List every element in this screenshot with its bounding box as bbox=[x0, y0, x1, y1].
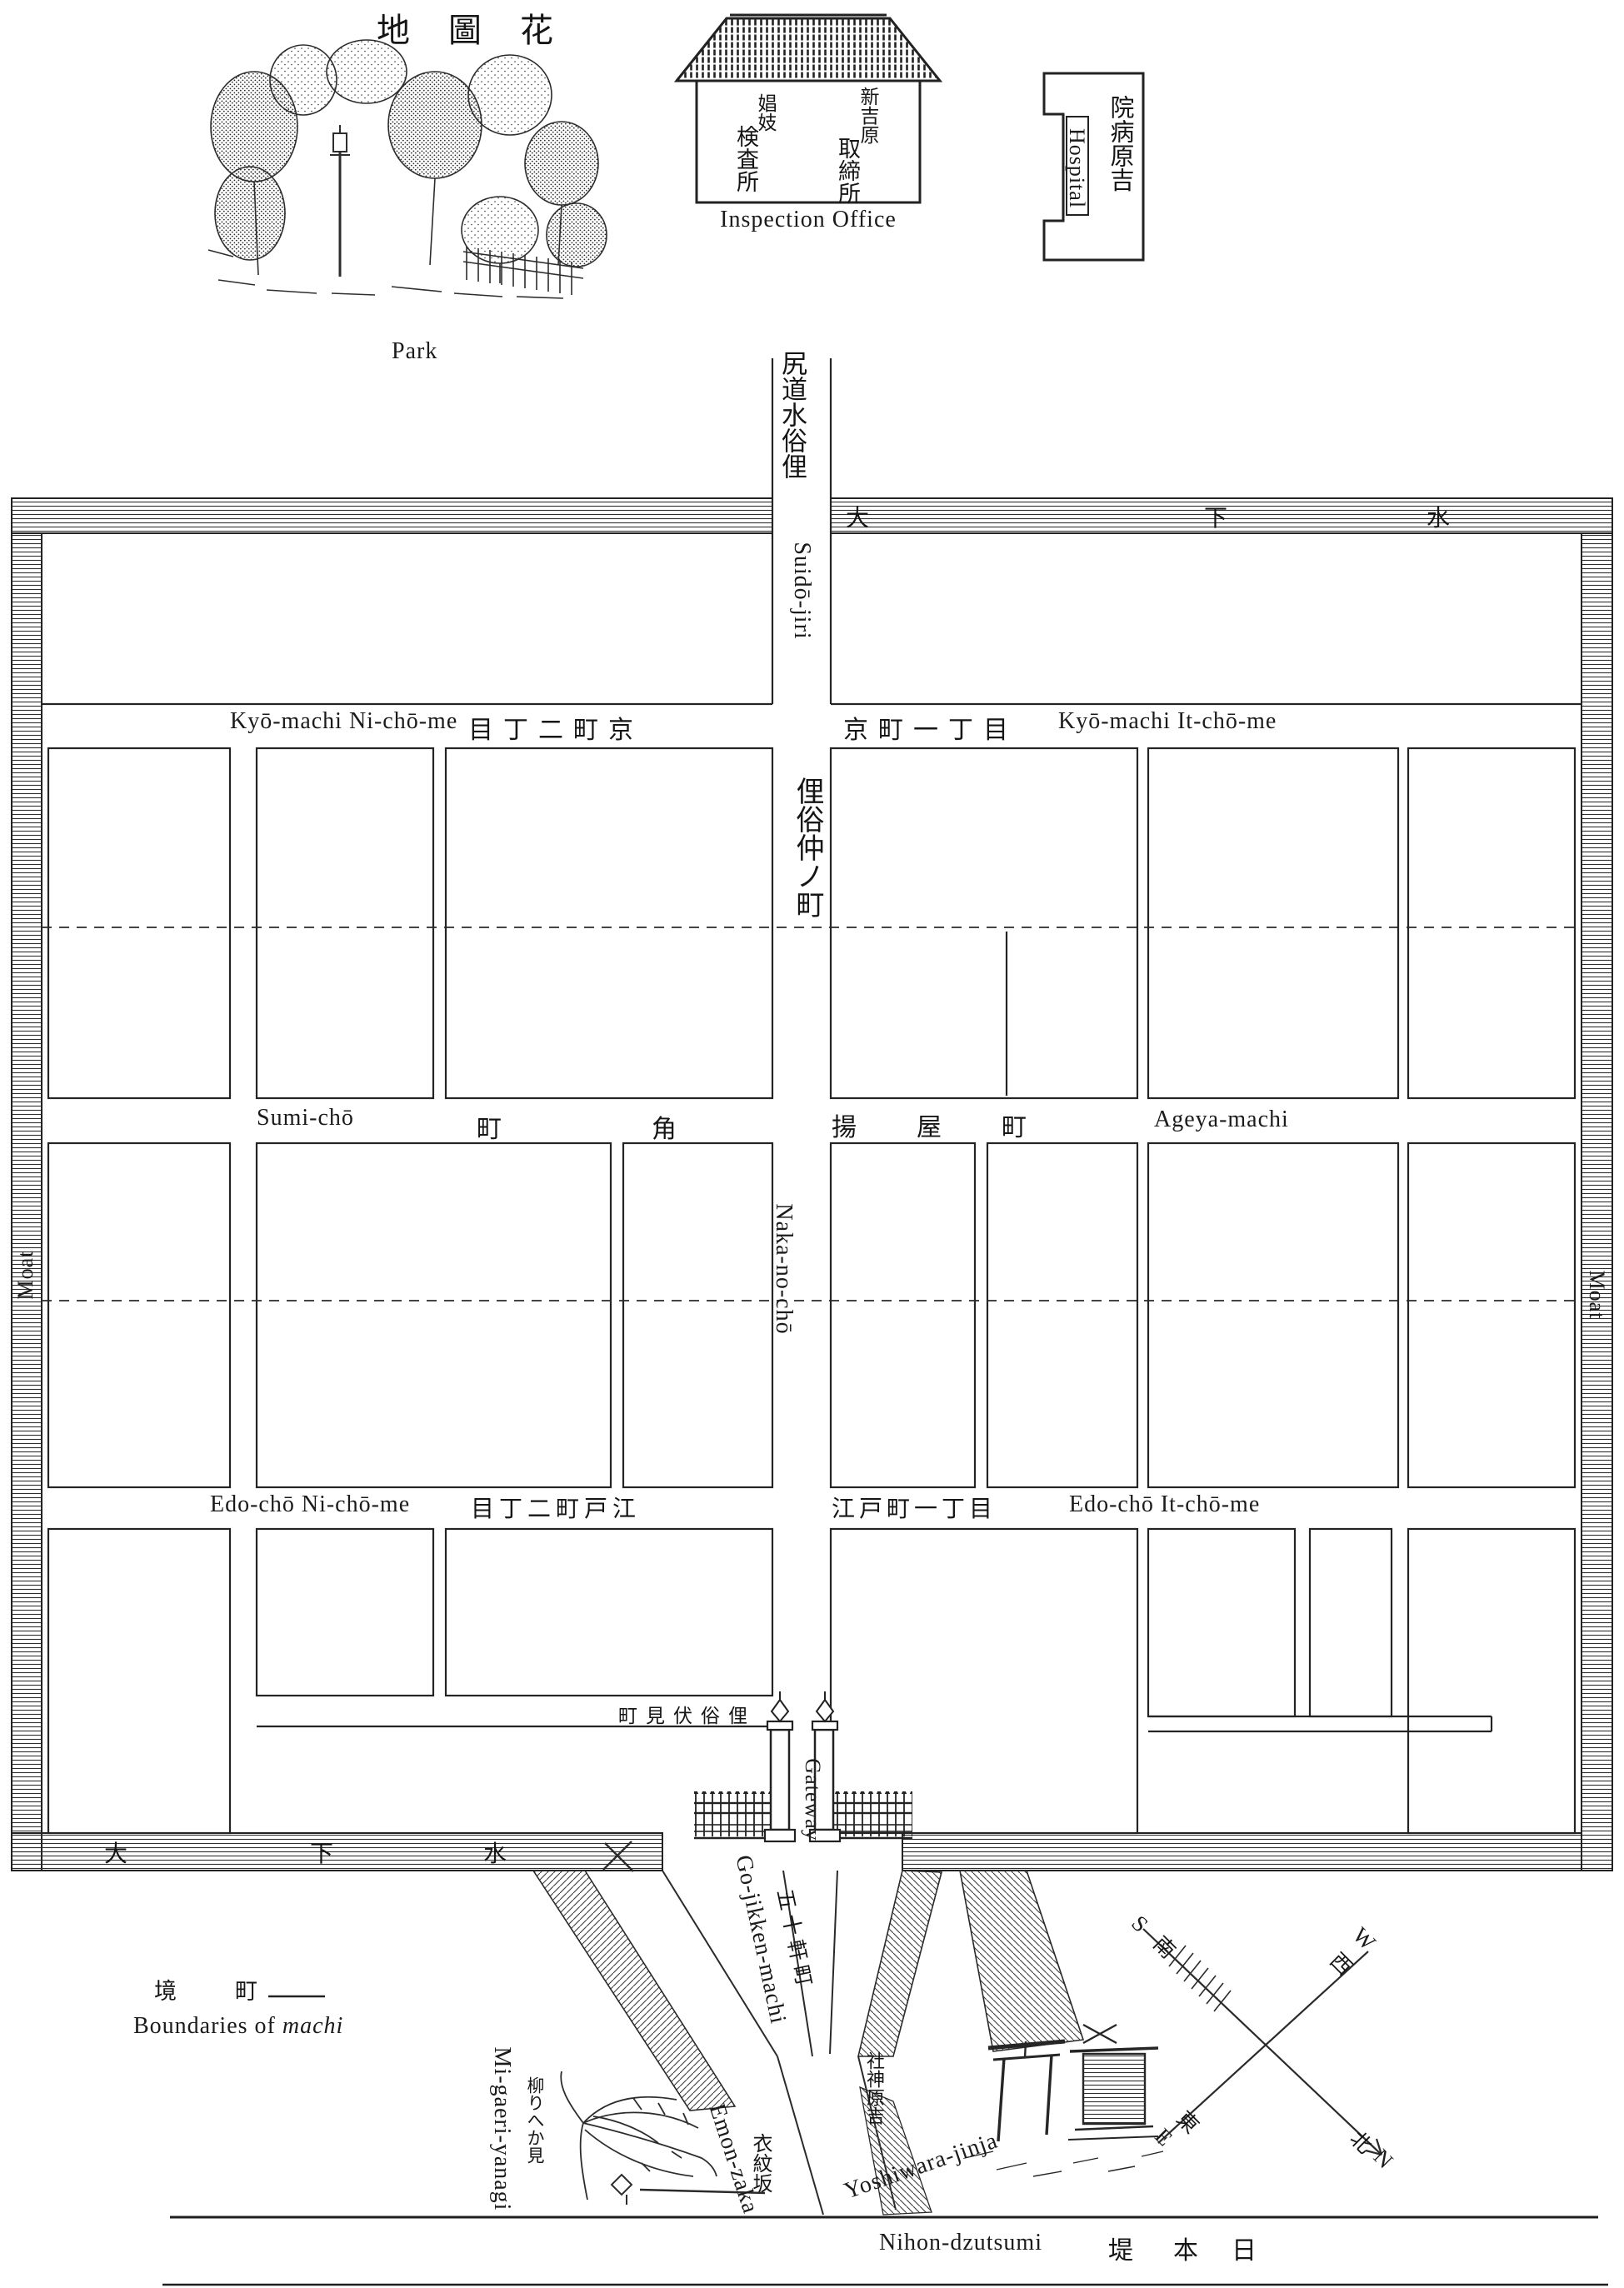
moat-bottom-char-3: 水 bbox=[483, 1836, 507, 1869]
sumi-cho-kanji-1: 町 bbox=[477, 1108, 502, 1145]
moat-top-char-1: 大 bbox=[846, 500, 869, 533]
moat-label-right: Moat bbox=[1584, 1263, 1609, 1326]
nihon-dzutsumi-kanji-3: 日 bbox=[1232, 2230, 1257, 2266]
road-slope-right bbox=[858, 1871, 942, 2056]
road-slope-left bbox=[533, 1871, 735, 2111]
shrine-slope bbox=[960, 1871, 1083, 2051]
naka-no-cho-label: Naka-no-chō bbox=[770, 1198, 797, 1340]
inspection-office-label: Inspection Office bbox=[700, 207, 917, 233]
migaeri-yanagi-label: Mi-gaeri-yanagi bbox=[488, 2033, 515, 2225]
edo-cho-1-label: Edo-chō It-chō-me bbox=[1069, 1491, 1260, 1518]
park-lamp bbox=[330, 125, 350, 277]
suido-jiri-label: Suidō-jiri bbox=[788, 528, 815, 653]
nihon-dzutsumi-kanji-1: 堤 bbox=[1108, 2230, 1133, 2266]
moat-top-char-3: 水 bbox=[1427, 500, 1450, 533]
legend-text: Boundaries of machi bbox=[133, 2013, 343, 2040]
moat-bottom-char-1: 大 bbox=[104, 1836, 127, 1869]
hospital-kanji: 院病原吉 bbox=[1100, 95, 1139, 192]
willow-lamp bbox=[612, 2175, 632, 2195]
gate-pillar-left bbox=[771, 1730, 789, 1830]
kyo-machi-1-kanji: 京町一丁目 bbox=[843, 709, 1018, 746]
edo-cho-2-kanji: 目丁二町戸江 bbox=[471, 1491, 641, 1524]
park-label: Park bbox=[392, 338, 437, 365]
inspection-kanji-col4: 取締所 bbox=[832, 137, 864, 204]
legend-text-prefix: Boundaries of bbox=[133, 2013, 282, 2039]
migaeri-yanagi-kanji: 柳りへか見 bbox=[525, 2076, 545, 2164]
edo-cho-1-kanji: 江戸町一丁目 bbox=[832, 1491, 997, 1524]
shrine-hut bbox=[1068, 2025, 1158, 2140]
sumi-cho-label: Sumi-chō bbox=[257, 1105, 354, 1132]
map-page: 地圖花 Park 娼妓 検査所 新吉原 取締所 Inspection Offic… bbox=[0, 0, 1624, 2288]
hospital-label: Hospital bbox=[1064, 114, 1089, 222]
fence-right bbox=[833, 1791, 912, 1838]
legend-kanji-2: 町 bbox=[235, 1973, 257, 2006]
legend-kanji-1: 境 bbox=[154, 1973, 177, 2006]
inspection-kanji-col3: 新吉原 bbox=[853, 87, 882, 144]
park-illustration bbox=[208, 40, 607, 298]
emon-zaka-kanji: 衣紋坂 bbox=[748, 2133, 772, 2193]
ageya-machi-label: Ageya-machi bbox=[1154, 1107, 1289, 1133]
kyo-machi-2-kanji: 目丁二町京 bbox=[468, 709, 643, 746]
suido-jiri-kanji: 尻道水俗俚 bbox=[775, 350, 808, 479]
yoshiwara-jinja-kanji: 社神原吉 bbox=[863, 2051, 885, 2125]
inspection-office-building bbox=[677, 15, 940, 202]
edo-cho-2-label: Edo-chō Ni-chō-me bbox=[210, 1491, 410, 1518]
nihon-dzutsumi-kanji-2: 本 bbox=[1173, 2230, 1198, 2266]
sumi-cho-kanji-2: 角 bbox=[652, 1108, 677, 1145]
naka-no-cho-kanji: 俚俗仲ノ町 bbox=[784, 777, 829, 918]
fushimi-cho-kanji: 町見伏俗俚 bbox=[618, 1700, 756, 1728]
moat-label-left: Moat bbox=[13, 1243, 38, 1306]
ageya-machi-kanji: 揚屋町 bbox=[832, 1107, 1087, 1143]
inspection-kanji-col2: 検査所 bbox=[730, 125, 762, 192]
gateway-label: Gateway bbox=[800, 1751, 825, 1848]
kyo-machi-2-label: Kyō-machi Ni-chō-me bbox=[230, 708, 457, 735]
compass-feathers bbox=[1169, 1946, 1231, 2011]
nihon-dzutsumi-label: Nihon-dzutsumi bbox=[879, 2230, 1042, 2256]
moat-bottom-char-2: 下 bbox=[310, 1836, 333, 1869]
map-title-kanji: 地圖花 bbox=[377, 3, 592, 52]
fence-left bbox=[694, 1791, 772, 1838]
approach-roads bbox=[533, 1841, 1083, 2215]
moat-top-char-2: 下 bbox=[1204, 500, 1227, 533]
legend-text-machi: machi bbox=[282, 2013, 343, 2039]
kyo-machi-1-label: Kyō-machi It-chō-me bbox=[1058, 708, 1277, 735]
